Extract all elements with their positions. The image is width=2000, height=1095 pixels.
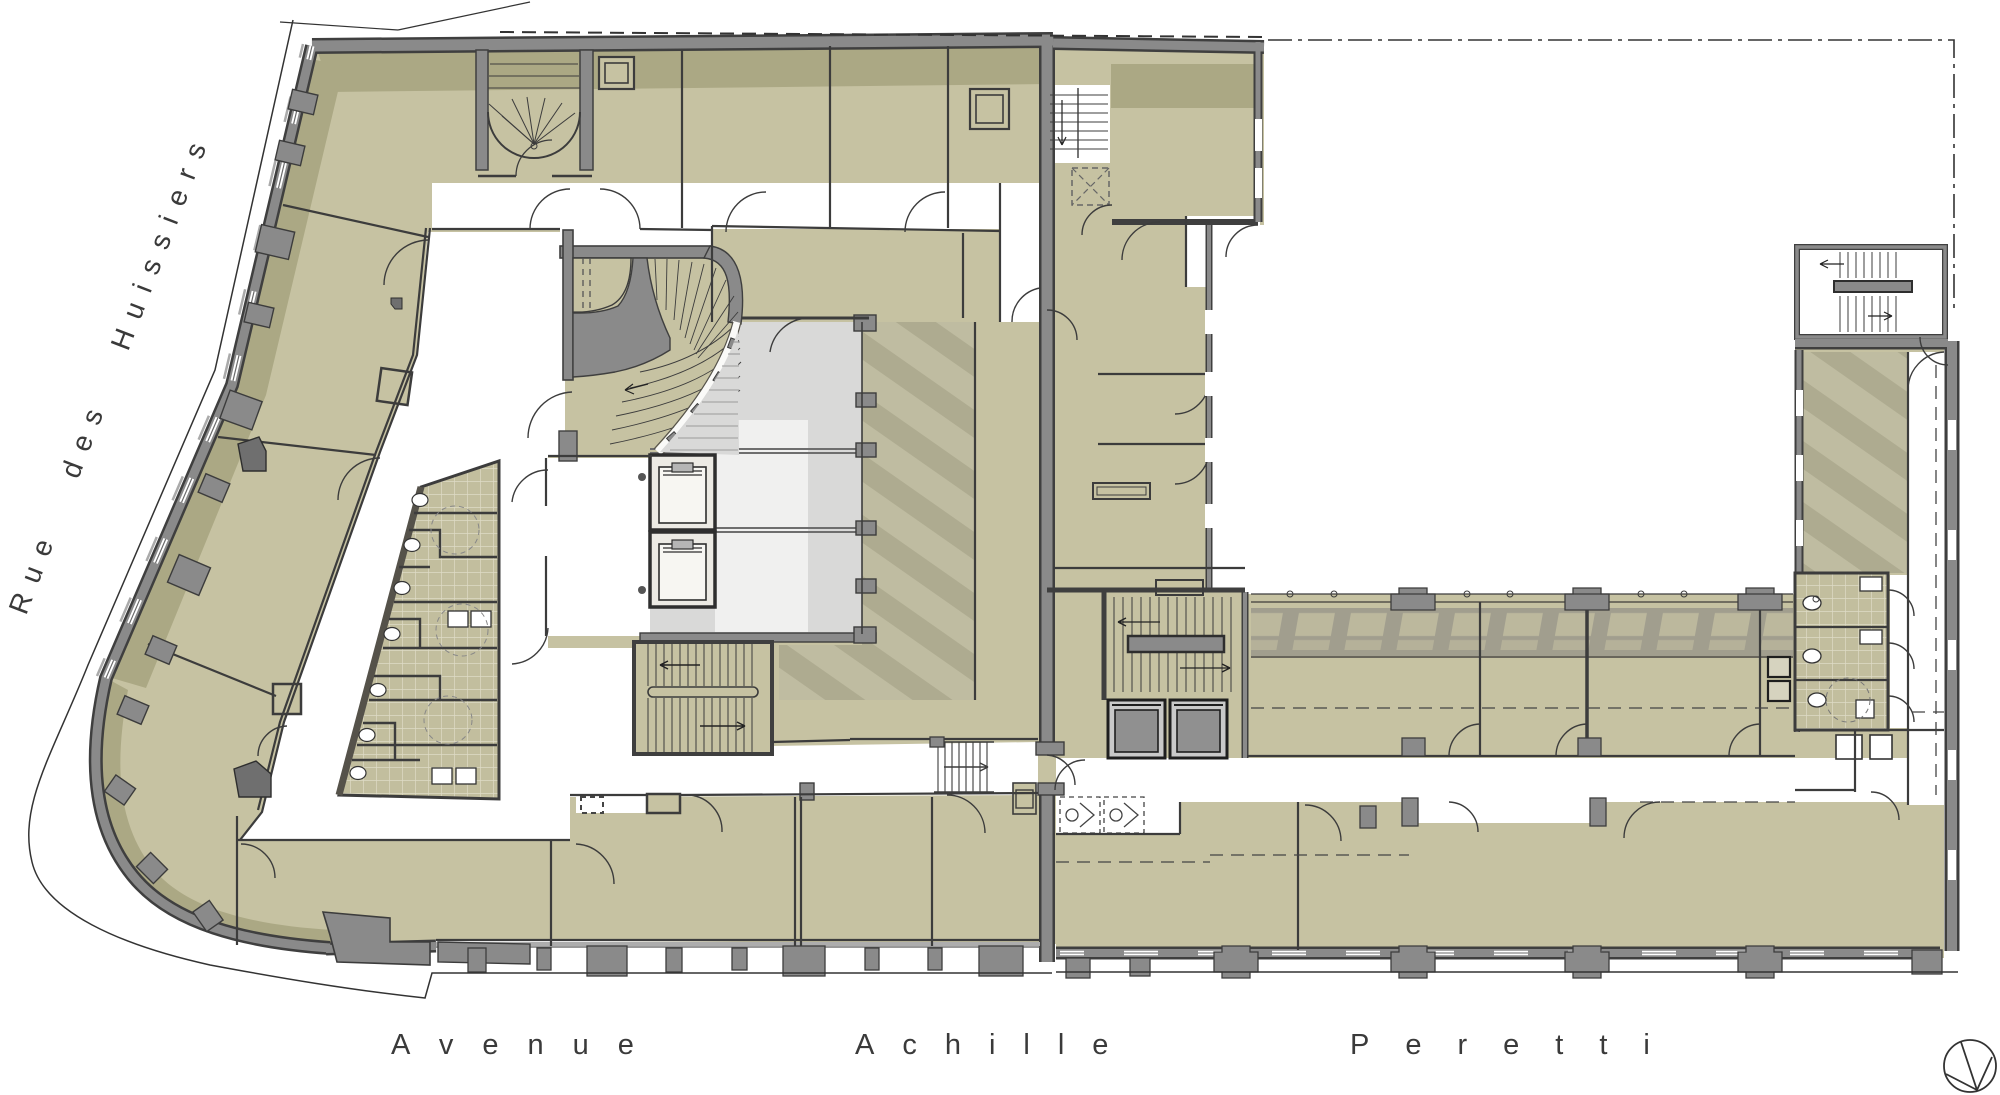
svg-text:Achille: Achille	[855, 1029, 1136, 1061]
svg-text:Peretti: Peretti	[1350, 1029, 1686, 1061]
svg-text:Avenue: Avenue	[391, 1029, 663, 1061]
